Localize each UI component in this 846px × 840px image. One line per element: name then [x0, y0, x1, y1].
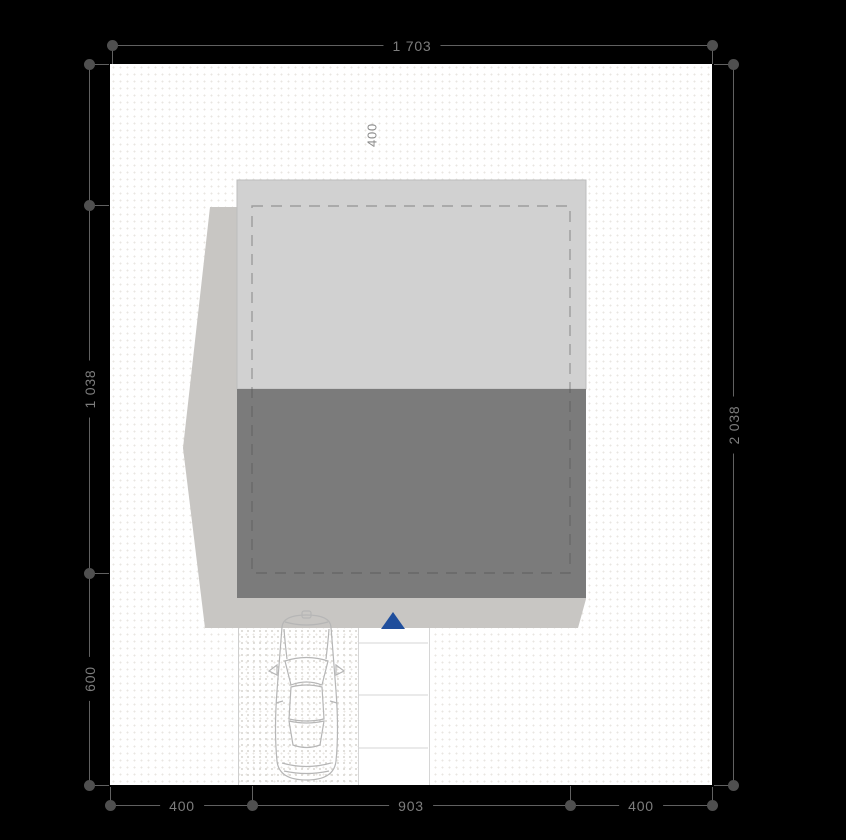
building-roof	[237, 180, 586, 389]
dim-endpoint-dot	[84, 568, 95, 579]
dim-endpoint-dot	[84, 200, 95, 211]
dim-label-front-setback: 400	[364, 114, 381, 156]
dim-label-bottom-left-setback: 400	[160, 797, 204, 815]
building-walls	[237, 389, 586, 598]
dim-label-plot-height: 2 038	[725, 396, 743, 453]
walkway-slab-lines	[358, 643, 428, 748]
dim-endpoint-dot	[107, 40, 118, 51]
dim-endpoint-dot	[84, 780, 95, 791]
dim-label-driveway-depth: 600	[81, 657, 99, 701]
plot-area: 400	[110, 64, 712, 785]
car-top-view-icon	[269, 611, 344, 780]
site-plan-canvas: 400 1 703 400 903 400 1 038 600 2 038	[0, 0, 846, 840]
dim-label-building-width: 903	[389, 797, 433, 815]
dim-label-building-depth: 1 038	[81, 360, 99, 417]
dim-endpoint-dot	[707, 800, 718, 811]
dim-endpoint-dot	[105, 800, 116, 811]
plan-drawing	[110, 64, 712, 785]
dim-endpoint-dot	[707, 40, 718, 51]
dim-endpoint-dot	[565, 800, 576, 811]
dim-endpoint-dot	[728, 780, 739, 791]
dim-label-plot-width: 1 703	[383, 37, 440, 55]
dim-label-bottom-right-setback: 400	[619, 797, 663, 815]
dim-endpoint-dot	[84, 59, 95, 70]
dim-endpoint-dot	[247, 800, 258, 811]
dim-endpoint-dot	[728, 59, 739, 70]
